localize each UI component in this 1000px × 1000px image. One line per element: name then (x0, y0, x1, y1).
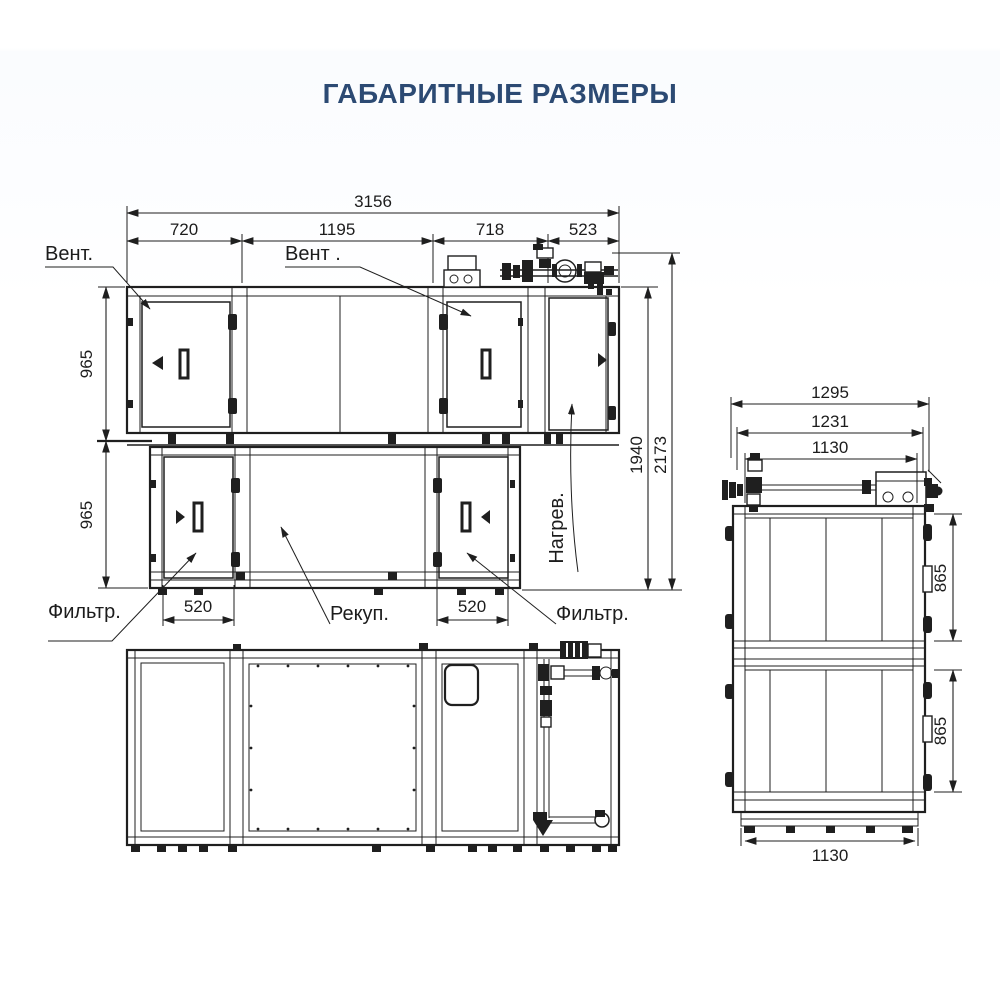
rear-piping (533, 641, 618, 836)
screw-dots (250, 665, 416, 831)
leader-filter-left (48, 553, 196, 641)
technical-drawing: 3156 720 1195 718 523 965 965 1940 2173 (0, 0, 1000, 1000)
hinge-icon (725, 772, 734, 787)
hinge-icon (439, 398, 448, 414)
drain-icon (533, 820, 553, 836)
rear-panel-2 (249, 664, 416, 831)
hinge-icon (433, 478, 442, 493)
hinge-icon (923, 616, 932, 633)
control-box (444, 256, 480, 287)
flange-icon (502, 263, 511, 280)
extension-lines-top (127, 206, 619, 283)
foot (388, 434, 396, 444)
label-heater: Нагрев. (546, 492, 568, 563)
foot (495, 588, 504, 595)
dim-upper-height: 965 (77, 350, 96, 378)
foot (457, 588, 466, 595)
dim-panel-depth: 1130 (812, 438, 849, 457)
rear-feet (131, 845, 617, 852)
foot (388, 572, 397, 580)
label-filter-right: Фильтр. (556, 603, 629, 625)
hinge-icon (433, 552, 442, 567)
hinge-icon (228, 314, 237, 330)
valve-icon (522, 260, 533, 282)
door-handle (180, 350, 188, 378)
leader-recuperator (281, 527, 330, 624)
leader-heater (571, 404, 578, 572)
foot (866, 826, 875, 833)
hinge-icon (725, 526, 734, 541)
dim-filter-right-width: 520 (458, 597, 486, 616)
dim-section-1195: 1195 (319, 220, 356, 239)
front-upper-row (127, 287, 619, 445)
dim-upper-side-height: 865 (931, 564, 950, 592)
label-filter-left: Фильтр. (48, 601, 121, 623)
recuperator-lower-panel (250, 455, 425, 580)
dim-body-height: 1940 (627, 436, 646, 474)
foot (194, 588, 203, 595)
door-swing-right-icon (176, 510, 185, 524)
foot (786, 826, 795, 833)
hinge-icon (725, 684, 734, 699)
dim-overall-depth: 1295 (811, 383, 849, 402)
dim-lower-side-height: 865 (931, 717, 950, 745)
door-swing-left-icon (481, 510, 490, 524)
dim-lower-height: 965 (77, 501, 96, 529)
dim-section-523: 523 (569, 220, 597, 239)
foot (902, 826, 913, 833)
foot (826, 826, 835, 833)
door-handle (462, 503, 470, 531)
rear-view (127, 641, 619, 852)
foot (744, 826, 755, 833)
foot (482, 434, 490, 444)
foot (236, 572, 245, 580)
label-fan-right: Вент . (285, 243, 341, 265)
dim-section-718: 718 (476, 220, 504, 239)
pipe (762, 485, 876, 490)
foot (502, 434, 510, 444)
label-fan-left: Вент. (45, 243, 93, 265)
dim-frame-depth: 1231 (811, 412, 849, 431)
hinge-icon (231, 478, 240, 493)
label-recuperator: Рекуп. (330, 603, 389, 625)
extension-lines-side-right (934, 514, 962, 792)
hinge-icon (725, 614, 734, 629)
door-handle (194, 503, 202, 531)
foot (374, 588, 383, 595)
filter-right-door (439, 457, 508, 578)
foot (168, 434, 176, 444)
pump-motor (584, 272, 604, 284)
gland-icon (903, 492, 913, 502)
pump-icon (554, 260, 576, 282)
foot (544, 434, 551, 444)
rear-panel-3 (442, 664, 518, 831)
front-view: 3156 720 1195 718 523 965 965 1940 2173 (45, 192, 682, 641)
side-casing (725, 504, 934, 833)
front-lower-row (150, 447, 520, 595)
foot (556, 434, 563, 444)
rear-panel-1 (141, 663, 224, 831)
gland-icon (883, 492, 893, 502)
side-view: 1295 1231 1130 (722, 383, 962, 865)
door-handle (482, 350, 490, 378)
hinge-icon (439, 314, 448, 330)
dim-overall-width: 3156 (354, 192, 392, 211)
door-swing-left-icon (152, 356, 163, 370)
dim-base-depth: 1130 (812, 846, 849, 865)
hinge-icon (923, 774, 932, 791)
hinge-icon (923, 524, 932, 541)
inspection-window (445, 665, 478, 705)
dim-section-720: 720 (170, 220, 198, 239)
side-control-box (876, 472, 926, 506)
flange-icon (513, 265, 520, 278)
dimensional-drawing-page: ГАБАРИТНЫЕ РАЗМЕРЫ 3156 720 1195 718 523 (0, 0, 1000, 1000)
dim-filter-left-width: 520 (184, 597, 212, 616)
hinge-icon (923, 682, 932, 699)
dim-total-height: 2173 (651, 436, 670, 474)
hinge-icon (608, 322, 616, 336)
foot (226, 434, 234, 444)
side-piping (722, 453, 943, 512)
hinge-icon (228, 398, 237, 414)
heater-piping (500, 244, 618, 289)
hinge-icon (231, 552, 240, 567)
hinge-icon (608, 406, 616, 420)
valve-icon (746, 477, 762, 493)
